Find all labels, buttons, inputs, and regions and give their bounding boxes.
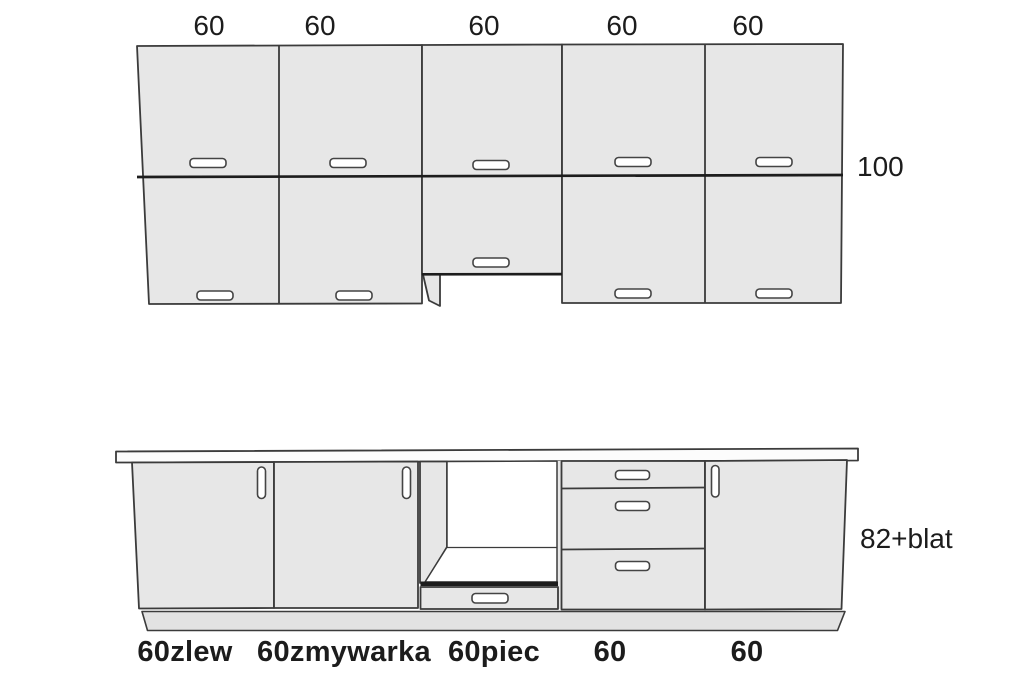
door-handle-icon xyxy=(615,289,651,298)
upper-height-label: 100 xyxy=(857,151,904,182)
unit-label-drawers: 60 xyxy=(594,636,627,668)
upper-cabinet-row: 60 60 60 60 60 xyxy=(137,10,904,306)
unit-label-right-door: 60 xyxy=(731,636,764,668)
base-door-dishwasher xyxy=(274,462,418,609)
door-handle-icon xyxy=(258,467,266,499)
drawer-handle-icon xyxy=(472,594,508,604)
width-label-4: 60 xyxy=(606,10,637,41)
wall-cabinet-3-short xyxy=(422,45,562,275)
upper-width-labels: 60 60 60 60 60 xyxy=(193,10,763,41)
base-drawer-unit xyxy=(562,461,706,610)
plinth xyxy=(142,612,845,631)
door-handle-icon xyxy=(197,291,233,300)
kitchen-cabinet-diagram: 60 60 60 60 60 xyxy=(0,0,1024,688)
door-handle-icon xyxy=(473,258,509,267)
drawer-divider xyxy=(562,549,706,550)
drawer-handle-icon xyxy=(616,502,650,511)
lower-cabinet-row: 82+blat 60zlew 60zmywarka 60piec 60 60 xyxy=(116,449,953,669)
oven-cavity-bottom-bar xyxy=(421,582,559,587)
door-handle-icon xyxy=(473,161,509,170)
door-handle-icon xyxy=(756,289,792,298)
door-handle-icon xyxy=(403,467,411,499)
width-label-5: 60 xyxy=(732,10,763,41)
unit-label-dishwasher: 60zmywarka xyxy=(257,636,431,668)
unit-label-sink: 60zlew xyxy=(137,636,232,668)
door-handle-icon xyxy=(712,466,720,498)
door-handle-icon xyxy=(190,159,226,168)
lower-height-label: 82+blat xyxy=(860,523,953,554)
width-label-2: 60 xyxy=(304,10,335,41)
base-door-right xyxy=(705,460,847,610)
drawer-handle-icon xyxy=(616,562,650,571)
diagram-canvas: 60 60 60 60 60 xyxy=(0,0,1024,688)
drawer-divider xyxy=(562,488,706,489)
drawer-handle-icon xyxy=(616,471,650,480)
door-handle-icon xyxy=(330,159,366,168)
wall-cabinets-4-5 xyxy=(562,44,843,303)
width-label-3: 60 xyxy=(468,10,499,41)
lower-unit-labels: 60zlew 60zmywarka 60piec 60 60 xyxy=(137,636,763,668)
door-handle-icon xyxy=(615,158,651,167)
door-handle-icon xyxy=(336,291,372,300)
base-door-sink xyxy=(132,462,274,609)
wall-cabinet-side-panel xyxy=(423,275,440,307)
unit-label-oven: 60piec xyxy=(448,636,540,668)
width-label-1: 60 xyxy=(193,10,224,41)
door-handle-icon xyxy=(756,158,792,167)
